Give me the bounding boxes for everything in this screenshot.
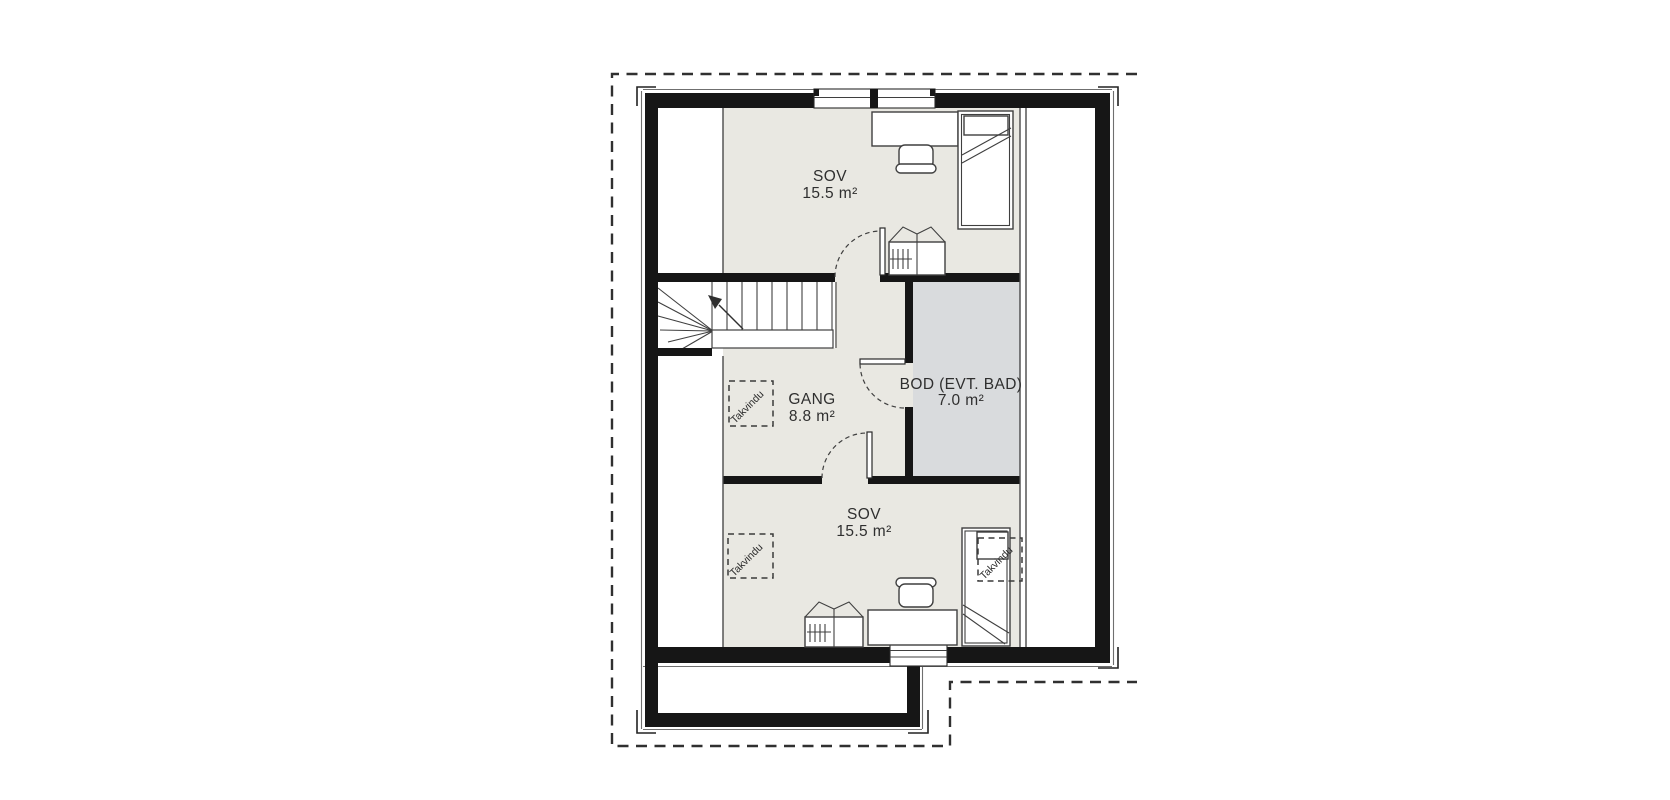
room-area-gang: 8.8 m² — [789, 408, 835, 425]
bottom-door-opening — [890, 644, 947, 666]
wall-left — [645, 93, 658, 727]
room-area-sov-bottom: 15.5 m² — [836, 523, 891, 540]
annex-wall-right — [907, 663, 920, 727]
wall-stair-top — [652, 273, 835, 282]
door-leaf-bod — [860, 359, 905, 364]
wall-gang-bottom-left — [723, 476, 822, 484]
wall-bod-left-upper — [905, 282, 913, 363]
wall-right — [1095, 93, 1110, 663]
wall-gang-bottom-right — [868, 476, 1020, 484]
door-leaf-sov-top — [880, 228, 885, 275]
chair-icon-bottom — [896, 578, 936, 607]
wall-bottom — [645, 647, 1110, 663]
room-area-sov-top: 15.5 m² — [802, 185, 857, 202]
annex-wall-bottom — [645, 713, 920, 727]
bed-icon-top — [958, 111, 1013, 229]
bed-icon-bottom — [962, 528, 1010, 646]
wall-bod-left-lower — [905, 407, 913, 484]
floorplan-canvas: Takvindu Takvindu Takvindu SOV 15.5 m² G… — [0, 0, 1670, 800]
room-area-bod: 7.0 m² — [938, 392, 984, 409]
room-label-gang: GANG — [788, 391, 835, 408]
desk-icon-bottom — [868, 610, 957, 645]
room-label-sov-bottom: SOV — [847, 506, 881, 523]
door-leaf-sov-bottom — [867, 432, 872, 478]
room-label-bod: BOD (EVT. BAD) — [900, 376, 1023, 393]
window-mullion — [870, 89, 878, 108]
stair-handrail — [712, 330, 833, 348]
staircase — [658, 282, 836, 349]
desk-icon-top — [872, 112, 958, 146]
floorplan-drawing: Takvindu Takvindu Takvindu SOV 15.5 m² G… — [0, 0, 1670, 800]
wall-stair-stub — [658, 348, 712, 356]
room-label-sov-top: SOV — [813, 168, 847, 185]
chair-icon-top — [896, 145, 936, 173]
